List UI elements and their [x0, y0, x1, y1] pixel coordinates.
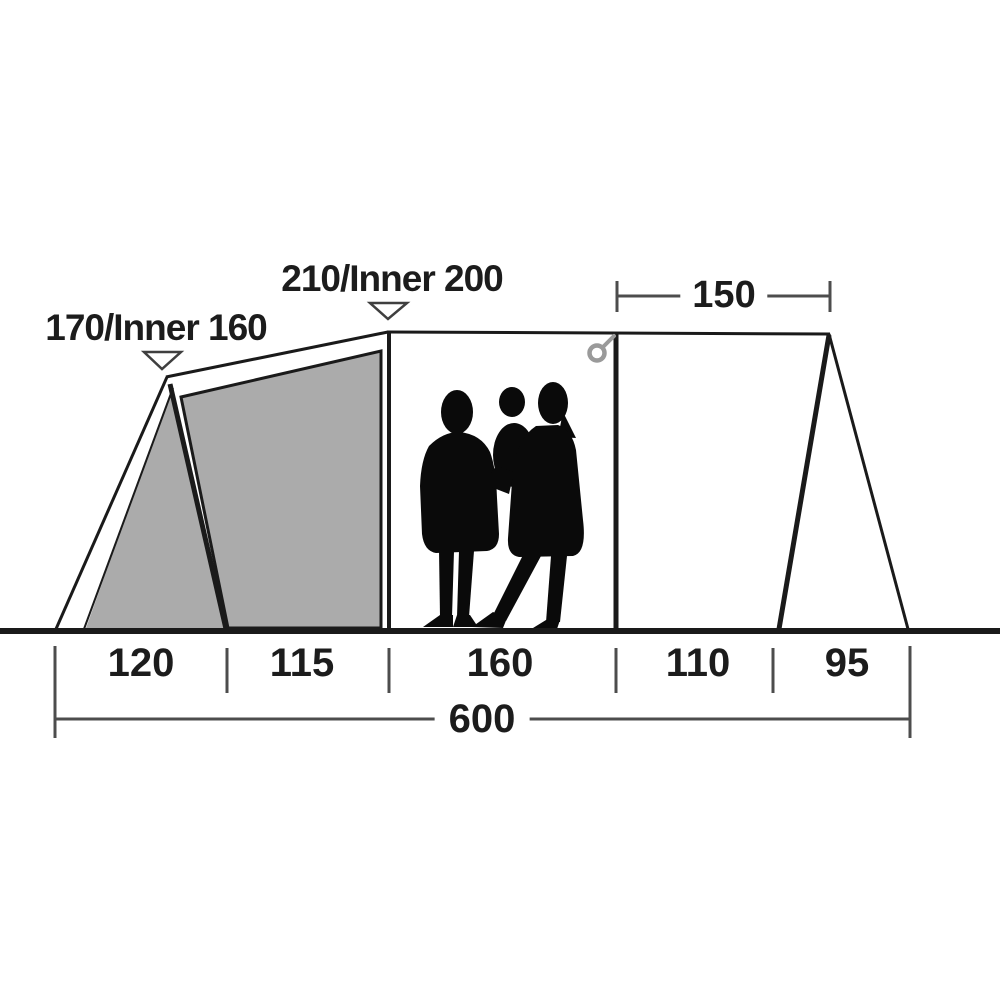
rear-outer-slope-line — [829, 334, 908, 629]
tent-structure-drawing — [0, 0, 1000, 1000]
down-arrow-middle-peak — [370, 303, 407, 319]
people-silhouette — [420, 382, 584, 629]
roof-ridge-line — [387, 332, 830, 334]
segment-label-95: 95 — [825, 643, 870, 683]
top-width-label: 150 — [680, 276, 767, 314]
child-head — [499, 387, 525, 417]
segment-label-115: 115 — [270, 643, 335, 683]
segment-label-160: 160 — [467, 643, 534, 683]
peak-height-label-middle: 210/Inner 200 — [281, 260, 502, 297]
peak-height-label-left: 170/Inner 160 — [45, 309, 266, 346]
segment-label-120: 120 — [108, 643, 175, 683]
total-width-label: 600 — [435, 699, 530, 739]
guy-ring-icon — [590, 336, 615, 361]
segment-label-110: 110 — [666, 643, 731, 683]
adult-left-silhouette — [420, 390, 499, 627]
down-arrow-left-peak — [144, 352, 181, 369]
tent-dimension-diagram: 170/Inner 160 210/Inner 200 150 120 115 … — [0, 0, 1000, 1000]
rear-pole-line — [779, 335, 829, 629]
